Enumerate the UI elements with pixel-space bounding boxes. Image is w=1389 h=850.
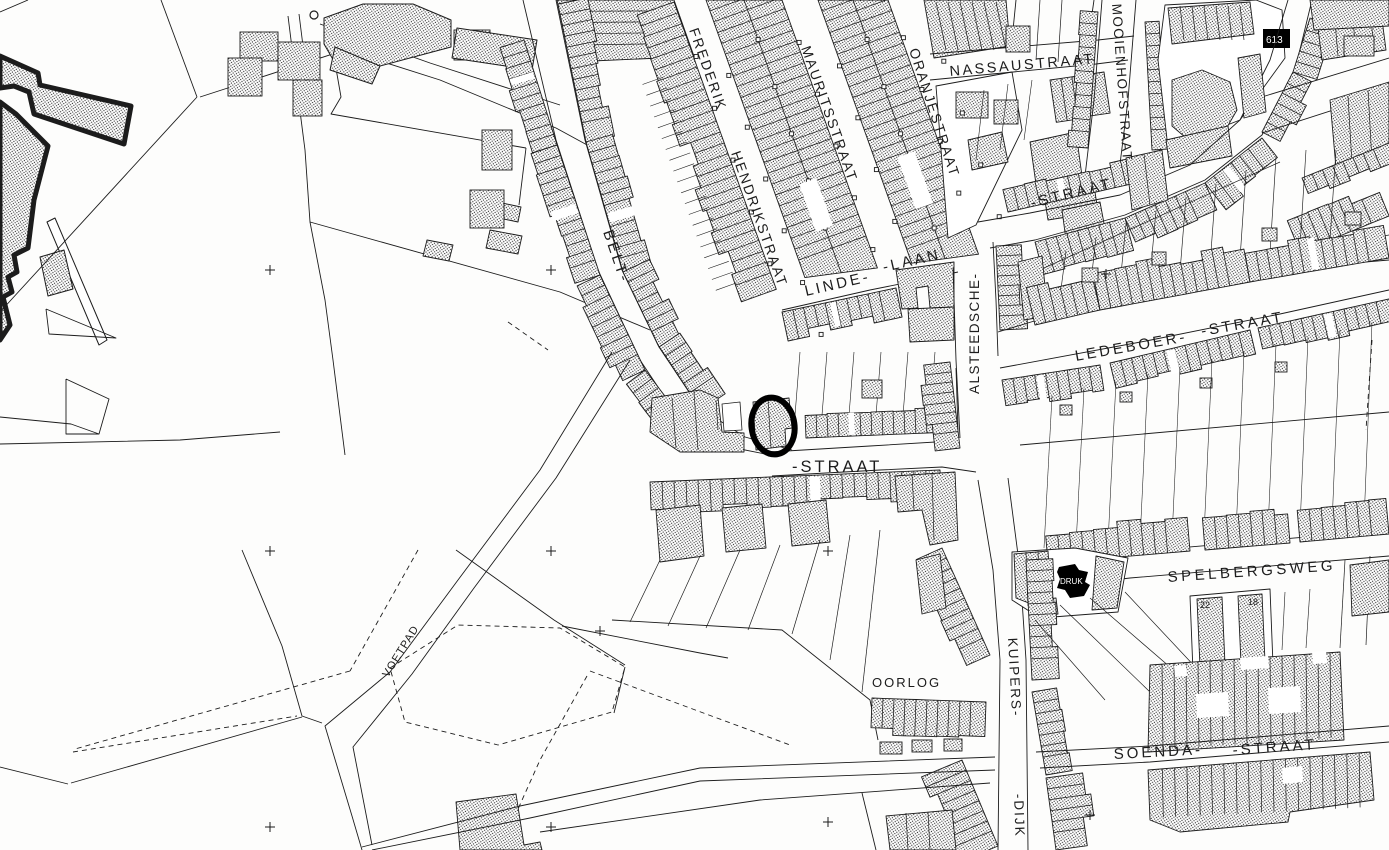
svg-text:18: 18	[1248, 597, 1258, 607]
svg-text:DRUK: DRUK	[1060, 577, 1083, 586]
svg-text:ALSTEEDSCHE-: ALSTEEDSCHE-	[967, 272, 982, 394]
svg-text:OORLOG: OORLOG	[872, 675, 941, 690]
svg-text:22: 22	[1200, 600, 1210, 610]
svg-text:-DIJK: -DIJK	[1011, 794, 1028, 838]
svg-text:-STRAAT: -STRAAT	[792, 458, 882, 476]
